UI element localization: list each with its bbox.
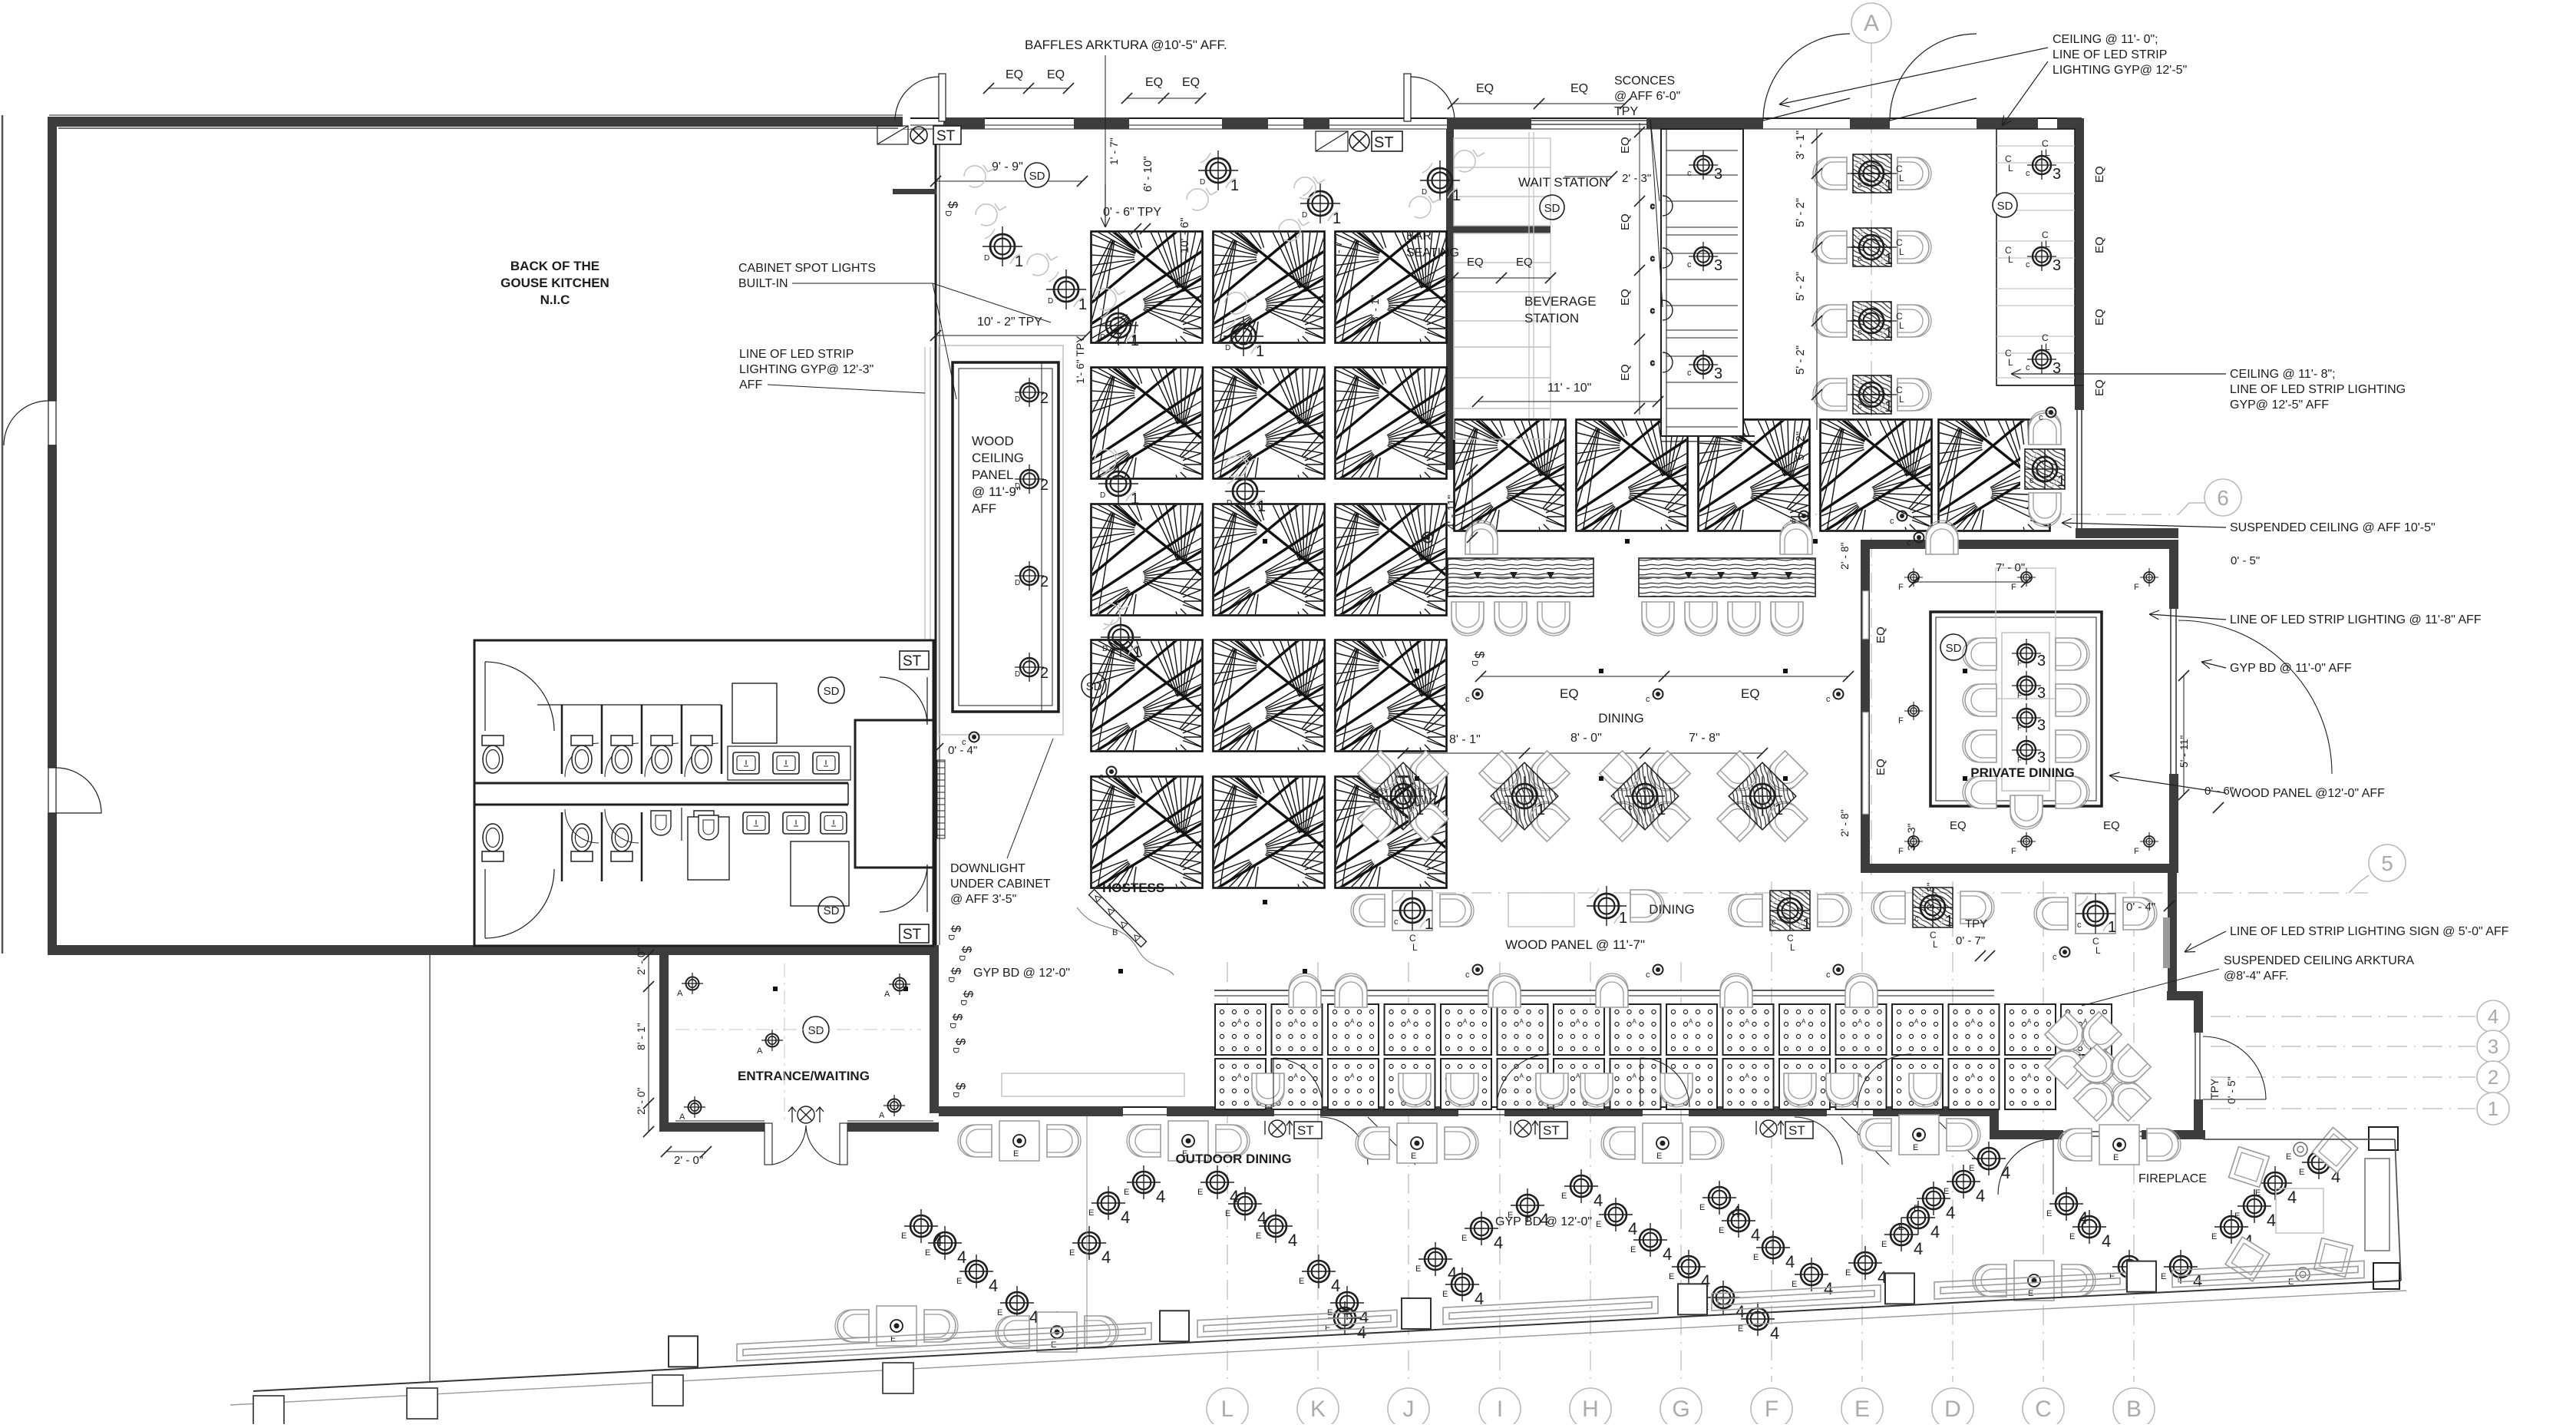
svg-text:2: 2 [2488, 1066, 2498, 1089]
svg-text:D: D [1102, 645, 1108, 653]
svg-text:4: 4 [1914, 1239, 1923, 1258]
svg-text:0' - 6" TPY: 0' - 6" TPY [1103, 206, 1161, 219]
svg-text:L: L [2045, 342, 2050, 352]
svg-text:EQ: EQ [1874, 626, 1887, 643]
svg-text:E: E [1630, 1245, 1636, 1254]
svg-text:PRIVATE DINING: PRIVATE DINING [1970, 765, 2074, 780]
svg-text:LINE OF LED STRIP LIGHTING: LINE OF LED STRIP LIGHTING [2230, 383, 2406, 396]
svg-text:D: D [948, 1023, 957, 1029]
svg-text:5' - 2": 5' - 2" [1794, 198, 1807, 227]
svg-text:E: E [1088, 1208, 1094, 1218]
svg-text:c: c [1745, 803, 1750, 812]
svg-text:$: $ [953, 1038, 968, 1046]
svg-text:1: 1 [1230, 177, 1239, 194]
svg-text:4: 4 [1121, 1208, 1130, 1227]
svg-text:c: c [1099, 772, 1104, 782]
svg-text:D: D [1944, 1397, 1961, 1422]
svg-text:SUSPENDED CEILING ARKTURA: SUSPENDED CEILING ARKTURA [2224, 954, 2414, 967]
svg-text:A: A [879, 1111, 885, 1120]
svg-text:7' - 8": 7' - 8" [1689, 732, 1720, 745]
svg-text:$: $ [946, 201, 960, 209]
svg-text:4: 4 [1357, 1323, 1366, 1342]
svg-text:3: 3 [2037, 717, 2046, 734]
svg-text:AFF: AFF [972, 501, 996, 516]
svg-text:1: 1 [1802, 916, 1811, 933]
svg-text:4: 4 [2102, 1231, 2111, 1251]
svg-text:3: 3 [1714, 365, 1722, 382]
svg-text:c: c [1465, 970, 1470, 980]
svg-text:E: E [2069, 1232, 2075, 1241]
svg-text:D: D [1225, 344, 1230, 352]
svg-text:CABINET SPOT LIGHTS: CABINET SPOT LIGHTS [738, 262, 876, 275]
svg-text:H: H [1582, 1397, 1599, 1422]
svg-text:L: L [2008, 357, 2013, 368]
svg-text:11' - 10": 11' - 10" [1547, 382, 1591, 395]
svg-text:4: 4 [989, 1276, 998, 1295]
svg-text:E: E [956, 1277, 962, 1286]
svg-text:3: 3 [2488, 1035, 2498, 1058]
svg-text:GYP BD @ 11'-0" AFF: GYP BD @ 11'-0" AFF [2230, 662, 2352, 675]
svg-text:0' - 7": 0' - 7" [1956, 934, 1985, 947]
svg-text:6: 6 [2217, 486, 2229, 510]
svg-text:1: 1 [1333, 210, 1341, 227]
svg-text:5: 5 [2381, 851, 2393, 875]
svg-text:c: c [1650, 306, 1655, 316]
svg-text:B: B [2126, 1397, 2142, 1422]
svg-text:4: 4 [2001, 1163, 2010, 1182]
svg-text:D: D [1100, 491, 1105, 500]
svg-text:EQ: EQ [1516, 256, 1533, 269]
svg-text:3: 3 [2037, 685, 2046, 702]
svg-text:F: F [2011, 583, 2016, 592]
svg-text:E: E [1461, 1234, 1467, 1243]
svg-text:LIGHTING GYP@ 12'-5": LIGHTING GYP@ 12'-5" [2053, 64, 2187, 77]
svg-text:- 7": - 7" [1332, 237, 1344, 253]
svg-text:GYP@ 12'-5" AFF: GYP@ 12'-5" AFF [2230, 398, 2329, 412]
svg-text:4: 4 [957, 1248, 966, 1267]
svg-text:ST: ST [1297, 1123, 1314, 1138]
svg-text:A: A [677, 989, 683, 998]
svg-text:c: c [1650, 202, 1655, 211]
svg-text:STATION: STATION [1524, 311, 1579, 326]
svg-text:1: 1 [1078, 296, 1087, 313]
svg-text:E: E [1753, 1253, 1759, 1262]
svg-text:8' - 1": 8' - 1" [1369, 295, 1381, 322]
svg-text:c: c [1508, 803, 1512, 812]
svg-text:4: 4 [1770, 1324, 1779, 1343]
svg-text:L: L [1221, 1397, 1234, 1422]
svg-text:$: $ [950, 1013, 965, 1021]
svg-text:2' - 8": 2' - 8" [1838, 542, 1851, 570]
svg-text:E: E [1069, 1248, 1075, 1258]
svg-text:BACK OF THE: BACK OF THE [510, 259, 599, 273]
svg-text:1: 1 [1884, 177, 1893, 194]
svg-text:GYP BD @ 12'-0": GYP BD @ 12'-0" [1495, 1215, 1592, 1228]
svg-text:SEATING: SEATING [1406, 246, 1459, 259]
svg-text:c: c [2026, 260, 2030, 269]
svg-text:1: 1 [1884, 398, 1893, 415]
svg-text:$: $ [1472, 651, 1487, 659]
svg-text:1: 1 [1452, 187, 1461, 204]
svg-text:F: F [1898, 847, 1904, 856]
svg-text:1: 1 [1775, 802, 1783, 818]
svg-text:E: E [997, 1308, 1002, 1317]
svg-text:1: 1 [1133, 644, 1141, 661]
svg-text:SD: SD [1086, 680, 1102, 693]
svg-text:E: E [2286, 1152, 2291, 1162]
svg-text:EQ: EQ [1619, 137, 1632, 154]
svg-text:CEILING @ 11'- 8";: CEILING @ 11'- 8"; [2230, 368, 2336, 381]
svg-text:SD: SD [1544, 202, 1560, 215]
svg-text:DINING: DINING [1598, 711, 1644, 726]
svg-text:4: 4 [1785, 1252, 1795, 1271]
svg-text:4: 4 [1930, 1222, 1940, 1241]
svg-text:1'- 6" TPY: 1'- 6" TPY [1074, 336, 1086, 384]
svg-text:LINE OF LED STRIP LIGHTING SIG: LINE OF LED STRIP LIGHTING SIGN @ 5'-0" … [2230, 925, 2509, 938]
svg-text:D: D [1015, 579, 1020, 587]
svg-text:F: F [1898, 716, 1904, 726]
svg-text:SCONCES: SCONCES [1614, 74, 1675, 88]
svg-text:GOUSE KITCHEN: GOUSE KITCHEN [500, 276, 609, 290]
svg-text:E: E [1738, 1324, 1743, 1334]
svg-text:c: c [1415, 538, 1420, 547]
svg-text:ST: ST [903, 927, 922, 943]
svg-text:3: 3 [1714, 257, 1722, 274]
svg-text:E: E [1124, 1188, 1129, 1197]
svg-text:4: 4 [1494, 1233, 1503, 1252]
svg-text:DINING: DINING [1649, 902, 1695, 917]
svg-text:L: L [2095, 945, 2101, 956]
svg-text:c: c [1858, 180, 1862, 190]
svg-text:c: c [1646, 695, 1650, 704]
svg-text:3' - 3": 3' - 3" [1905, 823, 1917, 851]
svg-text:BEVERAGE: BEVERAGE [1524, 294, 1597, 309]
svg-text:L: L [2008, 254, 2013, 265]
svg-text:SD: SD [1029, 170, 1045, 183]
svg-text:1: 1 [1537, 802, 1545, 818]
svg-text:$: $ [959, 946, 974, 954]
svg-text:E: E [1719, 1226, 1724, 1235]
svg-text:c: c [1907, 538, 1911, 547]
svg-text:2' - 8": 2' - 8" [1838, 809, 1851, 837]
svg-text:D: D [1015, 670, 1020, 679]
svg-text:D: D [1227, 499, 1232, 507]
svg-text:4: 4 [1628, 1219, 1637, 1238]
svg-text:A: A [679, 1112, 685, 1122]
svg-text:EQ: EQ [2093, 236, 2106, 253]
svg-text:WOOD: WOOD [972, 434, 1014, 448]
svg-text:SUSPENDED CEILING @ AFF 10'-5": SUSPENDED CEILING @ AFF 10'-5" [2230, 521, 2436, 534]
svg-text:E: E [1299, 1277, 1304, 1286]
svg-text:2' - 3": 2' - 3" [1622, 172, 1651, 185]
svg-text:E: E [1854, 1397, 1870, 1422]
svg-text:J: J [1403, 1397, 1415, 1422]
svg-text:@ 11'-9": @ 11'-9" [972, 484, 1021, 499]
svg-text:2: 2 [1040, 574, 1049, 590]
svg-text:c: c [1792, 517, 1796, 526]
svg-text:EQ: EQ [1047, 68, 1065, 81]
svg-text:2' - 0": 2' - 0" [635, 1087, 647, 1115]
svg-text:WOOD PANEL @ 11'-7": WOOD PANEL @ 11'-7" [1505, 937, 1645, 952]
svg-text:DOWNLIGHT: DOWNLIGHT [950, 862, 1025, 875]
svg-text:F: F [2134, 583, 2139, 592]
svg-text:D: D [957, 955, 966, 961]
svg-text:0' - 5": 0' - 5" [2225, 1076, 2237, 1104]
svg-text:1: 1 [1945, 913, 1953, 930]
svg-text:HOSTESS: HOSTESS [1102, 881, 1164, 895]
svg-text:EQ: EQ [1619, 364, 1632, 381]
svg-text:c: c [1826, 695, 1831, 704]
svg-text:10' - 2" TPY: 10' - 2" TPY [977, 316, 1042, 329]
svg-text:c: c [1890, 517, 1894, 526]
svg-text:LIGHTING GYP@ 12'-3": LIGHTING GYP@ 12'-3" [739, 363, 874, 376]
svg-text:@ AFF 3'-5": @ AFF 3'-5" [950, 893, 1016, 906]
svg-text:1: 1 [1619, 910, 1627, 927]
svg-text:4: 4 [1824, 1279, 1833, 1298]
svg-text:E: E [2046, 1209, 2052, 1218]
svg-text:D: D [946, 934, 956, 940]
svg-text:E: E [1845, 1268, 1851, 1278]
svg-text:FIREPLACE: FIREPLACE [2138, 1172, 2207, 1185]
svg-text:c: c [2077, 921, 2082, 930]
svg-text:5' - 2": 5' - 2" [1794, 431, 1807, 461]
svg-text:SD: SD [824, 685, 840, 698]
svg-text:CEILING: CEILING [972, 451, 1024, 465]
svg-text:A: A [1864, 11, 1879, 36]
svg-text:EQ: EQ [2093, 379, 2106, 396]
svg-text:c: c [962, 738, 966, 747]
svg-text:6' - 10": 6' - 10" [1141, 156, 1154, 192]
svg-text:10' - 6": 10' - 6" [1178, 217, 1191, 253]
svg-text:1: 1 [1884, 251, 1893, 268]
svg-text:EQ: EQ [2093, 166, 2106, 183]
svg-text:D: D [943, 210, 953, 217]
svg-text:4' - 11": 4' - 11" [1445, 495, 1458, 530]
svg-text:E: E [1656, 1152, 1662, 1161]
svg-text:LINE OF LED STRIP: LINE OF LED STRIP [739, 348, 854, 361]
svg-text:2' - 0": 2' - 0" [674, 1154, 703, 1167]
svg-text:ST: ST [1788, 1123, 1805, 1138]
svg-text:8' - 1": 8' - 1" [635, 1023, 647, 1050]
svg-text:4: 4 [1663, 1245, 1672, 1264]
svg-text:4: 4 [1288, 1231, 1297, 1250]
svg-text:E: E [1881, 1240, 1887, 1249]
svg-text:E: E [1013, 1149, 1019, 1159]
svg-text:1: 1 [1884, 325, 1893, 342]
svg-text:D: D [1302, 211, 1307, 220]
svg-text:ST: ST [1374, 134, 1394, 151]
svg-text:1: 1 [1015, 253, 1023, 270]
svg-text:E: E [1415, 1264, 1421, 1274]
svg-text:1: 1 [1256, 343, 1264, 360]
svg-text:1: 1 [2488, 1097, 2498, 1120]
svg-text:1: 1 [2108, 919, 2116, 936]
svg-text:3: 3 [1714, 166, 1722, 183]
svg-text:LINE OF LED STRIP: LINE OF LED STRIP [2053, 48, 2167, 61]
svg-text:1: 1 [1425, 916, 1433, 933]
svg-text:L: L [1899, 320, 1904, 331]
svg-text:F: F [1765, 1397, 1778, 1422]
svg-text:E: E [2299, 1168, 2304, 1177]
svg-text:D: D [984, 254, 989, 263]
svg-text:BUILT-IN: BUILT-IN [738, 277, 788, 290]
svg-text:c: c [1687, 369, 1692, 378]
svg-text:D: D [1100, 333, 1105, 342]
svg-text:4: 4 [1101, 1248, 1111, 1267]
svg-text:5' - 2": 5' - 2" [1794, 272, 1807, 301]
svg-text:0' - 4": 0' - 4" [2126, 901, 2155, 914]
svg-text:OUTDOOR DINING: OUTDOOR DINING [1175, 1152, 1291, 1166]
svg-text:2: 2 [1040, 477, 1049, 494]
svg-text:GYP BD @ 12'-0": GYP BD @ 12'-0" [973, 967, 1070, 980]
svg-text:1: 1 [1131, 491, 1139, 507]
svg-text:4: 4 [2267, 1211, 2276, 1230]
svg-text:1' - 7": 1' - 7" [1108, 137, 1120, 165]
svg-text:c: c [2039, 413, 2043, 422]
svg-text:L: L [1933, 939, 1938, 950]
svg-text:SD: SD [824, 904, 840, 917]
svg-text:A: A [884, 990, 890, 999]
svg-text:3: 3 [2037, 749, 2046, 766]
svg-text:1: 1 [1657, 802, 1666, 818]
svg-text:WAIT STATION: WAIT STATION [1518, 175, 1608, 190]
svg-text:@8'-4" AFF.: @8'-4" AFF. [2224, 970, 2289, 983]
svg-text:EQ: EQ [1006, 68, 1023, 81]
svg-text:3: 3 [2053, 257, 2061, 274]
svg-text:EQ: EQ [1619, 213, 1632, 230]
svg-text:c: c [1386, 803, 1391, 812]
svg-text:3' - 1": 3' - 1" [1794, 131, 1807, 160]
svg-text:@ AFF 6'-0": @ AFF 6'-0" [1614, 90, 1680, 103]
svg-text:SD: SD [808, 1024, 824, 1037]
svg-text:E: E [2113, 1153, 2119, 1162]
svg-text:BAR: BAR [1406, 230, 1432, 243]
svg-text:4: 4 [1735, 1302, 1745, 1321]
svg-text:CEILING @ 11'- 0";: CEILING @ 11'- 0"; [2053, 33, 2158, 46]
svg-text:3: 3 [2037, 653, 2046, 669]
svg-text:G: G [1672, 1397, 1689, 1422]
svg-text:D: D [951, 1092, 960, 1098]
svg-text:L: L [1899, 394, 1904, 405]
svg-text:c: c [1394, 917, 1399, 927]
svg-text:L: L [2045, 147, 2050, 158]
svg-text:ENTRANCE/WAITING: ENTRANCE/WAITING [738, 1069, 870, 1083]
svg-text:F: F [2017, 659, 2022, 668]
svg-text:ST: ST [903, 653, 922, 669]
svg-text:EQ: EQ [1145, 76, 1163, 89]
svg-text:N.I.C: N.I.C [540, 293, 570, 307]
svg-text:L: L [1899, 246, 1904, 257]
svg-text:c: c [1772, 917, 1776, 927]
svg-text:c: c [1858, 328, 1862, 337]
svg-text:c: c [1650, 359, 1655, 368]
svg-text:TPY: TPY [2208, 1078, 2221, 1099]
svg-text:4: 4 [2287, 1188, 2297, 1207]
svg-text:E: E [1699, 1203, 1705, 1212]
svg-text:ST: ST [1543, 1123, 1560, 1138]
svg-text:F: F [2017, 692, 2022, 700]
svg-text:3: 3 [2053, 360, 2061, 377]
svg-text:F: F [2017, 724, 2022, 732]
svg-text:0' - 5": 0' - 5" [2231, 554, 2260, 567]
svg-text:TPY: TPY [1965, 917, 1987, 931]
svg-text:c: c [1628, 803, 1633, 812]
svg-text:ST: ST [936, 128, 956, 144]
svg-text:L: L [2045, 239, 2050, 250]
svg-text:SD: SD [1997, 200, 2013, 213]
svg-text:I: I [1497, 1397, 1503, 1422]
svg-text:EQ: EQ [2093, 309, 2106, 326]
svg-text:A: A [757, 1046, 763, 1056]
svg-text:5' - 2": 5' - 2" [1794, 345, 1807, 375]
svg-text:c: c [2026, 169, 2030, 178]
svg-text:c: c [2053, 953, 2057, 962]
svg-text:EQ: EQ [1476, 82, 1494, 95]
svg-text:E: E [1197, 1188, 1203, 1197]
svg-text:c: c [1687, 169, 1692, 178]
svg-text:LINE OF LED STRIP LIGHTING @ 1: LINE OF LED STRIP LIGHTING @ 11'-8" AFF [2230, 613, 2482, 626]
svg-text:4: 4 [1946, 1203, 1955, 1222]
svg-text:F: F [2011, 847, 2016, 856]
svg-text:E: E [1669, 1272, 1674, 1281]
svg-text:4: 4 [1751, 1225, 1760, 1245]
svg-text:E: E [925, 1248, 930, 1258]
svg-text:D: D [1015, 395, 1020, 404]
svg-text:c: c [1465, 695, 1470, 704]
svg-text:1: 1 [1257, 498, 1266, 515]
svg-text:c: c [1646, 970, 1650, 980]
svg-text:2: 2 [1040, 665, 1049, 682]
svg-text:EQ: EQ [1874, 759, 1887, 775]
svg-text:E: E [2161, 1272, 2166, 1281]
svg-text:c: c [1650, 254, 1655, 263]
svg-text:c: c [1687, 260, 1692, 269]
svg-text:E: E [2211, 1232, 2217, 1241]
svg-text:3: 3 [2053, 166, 2061, 183]
svg-text:EQ: EQ [1619, 289, 1632, 306]
svg-text:K: K [1310, 1397, 1326, 1422]
svg-text:SD: SD [1946, 642, 1962, 655]
svg-text:TPY: TPY [1614, 105, 1638, 118]
svg-text:L: L [1790, 942, 1795, 953]
svg-text:EQ: EQ [2103, 819, 2120, 832]
svg-text:4: 4 [1331, 1276, 1340, 1295]
svg-text:E: E [1442, 1290, 1448, 1299]
svg-text:E: E [1792, 1280, 1797, 1289]
svg-text:L: L [2008, 163, 2013, 174]
svg-text:EQ: EQ [1950, 819, 1967, 832]
svg-text:PANEL: PANEL [972, 468, 1014, 482]
svg-text:8' - 1": 8' - 1" [1449, 733, 1481, 746]
svg-text:D: D [959, 1000, 968, 1006]
svg-text:UNDER CABINET: UNDER CABINET [950, 878, 1051, 891]
svg-text:c: c [1826, 970, 1831, 980]
svg-text:EQ: EQ [1467, 256, 1484, 269]
svg-text:$: $ [953, 1083, 968, 1090]
svg-text:D: D [1200, 178, 1205, 187]
svg-text:EQ: EQ [1570, 82, 1588, 95]
svg-text:BAFFLES ARKTURA @10'-5" AFF.: BAFFLES ARKTURA @10'-5" AFF. [1025, 38, 1227, 52]
svg-text:L: L [1899, 173, 1904, 183]
svg-text:2' - 0": 2' - 0" [635, 947, 647, 975]
svg-text:B: B [1112, 928, 1118, 937]
svg-text:c: c [2029, 476, 2034, 485]
svg-text:E: E [1256, 1231, 1261, 1241]
svg-text:E: E [1225, 1209, 1230, 1218]
svg-text:AFF: AFF [739, 378, 762, 392]
svg-text:EQ: EQ [1560, 686, 1579, 701]
svg-text:F: F [1898, 583, 1904, 592]
